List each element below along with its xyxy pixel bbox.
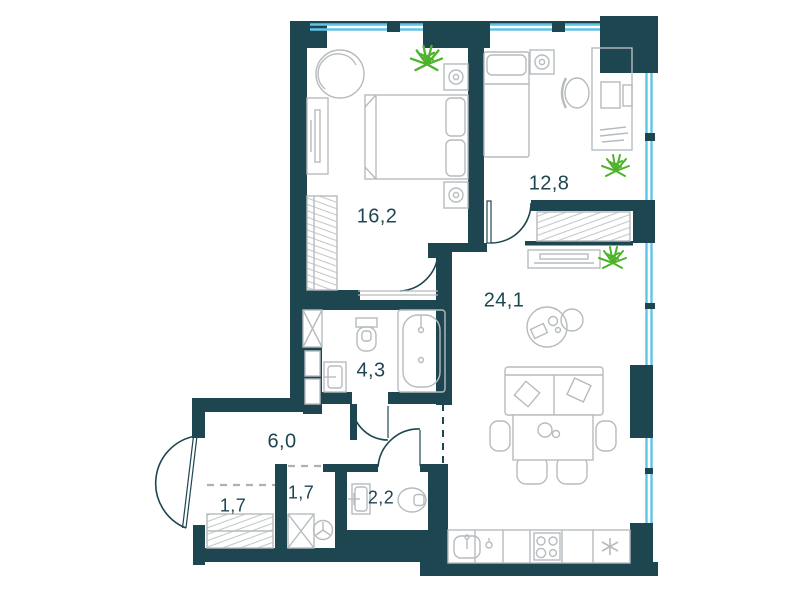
bedroom-door xyxy=(358,253,438,295)
sofa xyxy=(505,367,603,415)
laundry-shaft-x xyxy=(288,514,314,548)
room-label-hallway: 6,0 xyxy=(267,431,296,454)
wall-bedroom-divider xyxy=(468,22,484,243)
wall-right-pier-2 xyxy=(630,365,653,438)
wall-12-8-bottom xyxy=(531,200,633,211)
wardrobe-12-8 xyxy=(537,212,630,241)
wall-top-corner-left xyxy=(290,22,327,48)
window-right-4 xyxy=(647,309,652,365)
wall-right-tab-2 xyxy=(645,303,655,309)
window-top-4 xyxy=(565,25,600,30)
tv-console xyxy=(528,250,600,268)
dashed-openings xyxy=(207,404,443,485)
wall-wc-top-left xyxy=(347,464,378,472)
floor-plan-page: 24,1 16,2 12,8 6,0 4,3 2,2 1,7 1,7 xyxy=(0,0,800,600)
nightstand-3 xyxy=(530,50,554,74)
plant-icon xyxy=(602,155,629,176)
double-bed xyxy=(365,95,468,179)
closet1-wardrobe xyxy=(207,514,273,548)
wc-sink xyxy=(348,484,370,514)
room-label-bedroom: 16,2 xyxy=(357,206,398,229)
shaft-box-1 xyxy=(305,351,320,376)
plant-icon xyxy=(599,247,626,268)
wall-right-tab-3 xyxy=(645,468,653,474)
room-label-wardrobe1: 1,7 xyxy=(220,496,246,517)
wall-hallway-top xyxy=(192,398,307,412)
wall-closet2-wc-divider xyxy=(335,464,347,548)
coffee-tables xyxy=(527,307,583,347)
shaft-box-2 xyxy=(305,379,320,404)
window-right-1 xyxy=(647,73,652,133)
wall-closet-divider xyxy=(275,464,287,548)
armchair xyxy=(316,50,364,98)
desk-chair xyxy=(562,78,589,108)
bedroom2-door xyxy=(487,201,531,243)
wall-bathroom-bottom-right xyxy=(388,392,452,404)
wall-right-corner-bottom xyxy=(630,523,653,568)
wall-top-corner-right xyxy=(600,16,658,73)
tv-panel xyxy=(307,98,328,174)
wall-wc-bottom xyxy=(347,530,448,548)
bathroom-door xyxy=(352,404,388,440)
wall-bottom-right xyxy=(445,562,658,576)
plant-icon xyxy=(411,46,442,70)
wardrobe-16-2 xyxy=(307,196,337,290)
window-right-2 xyxy=(647,141,652,200)
vent-shaft-x xyxy=(303,310,322,347)
entrance-door xyxy=(156,436,197,528)
wall-bottom-left xyxy=(193,548,445,562)
wall-corridor-right xyxy=(436,250,452,405)
washing-machine xyxy=(314,521,333,540)
room-label-bathroom: 4,3 xyxy=(356,360,385,383)
window-right-5 xyxy=(647,438,652,468)
bathroom-sink xyxy=(324,362,346,392)
window-right-3 xyxy=(647,243,652,303)
room-label-living: 24,1 xyxy=(484,290,525,313)
kitchen-counter xyxy=(448,530,630,563)
nightstand-1 xyxy=(444,64,468,90)
toilet xyxy=(356,318,377,351)
window-right-6 xyxy=(647,474,652,523)
window-top-3 xyxy=(490,25,552,30)
wall-top-pier-b xyxy=(552,22,565,32)
nightstand-2 xyxy=(444,182,468,208)
room-label-wc: 2,2 xyxy=(368,488,394,509)
floor-plan-drawing xyxy=(0,0,800,600)
room-label-wardrobe2: 1,7 xyxy=(288,483,314,504)
wall-entrance-top-stub xyxy=(192,398,205,438)
wall-bathroom-top xyxy=(303,300,452,310)
wc-toilet xyxy=(398,488,426,512)
wall-right-tab-1 xyxy=(645,133,655,141)
dining-set xyxy=(490,415,616,484)
room-label-bedroom2: 12,8 xyxy=(529,173,570,196)
window-top-2 xyxy=(400,25,423,30)
single-bed xyxy=(484,52,529,157)
wall-top-pier-a xyxy=(387,22,400,32)
wc-door xyxy=(378,429,420,467)
wall-right-pier-1 xyxy=(633,200,655,243)
